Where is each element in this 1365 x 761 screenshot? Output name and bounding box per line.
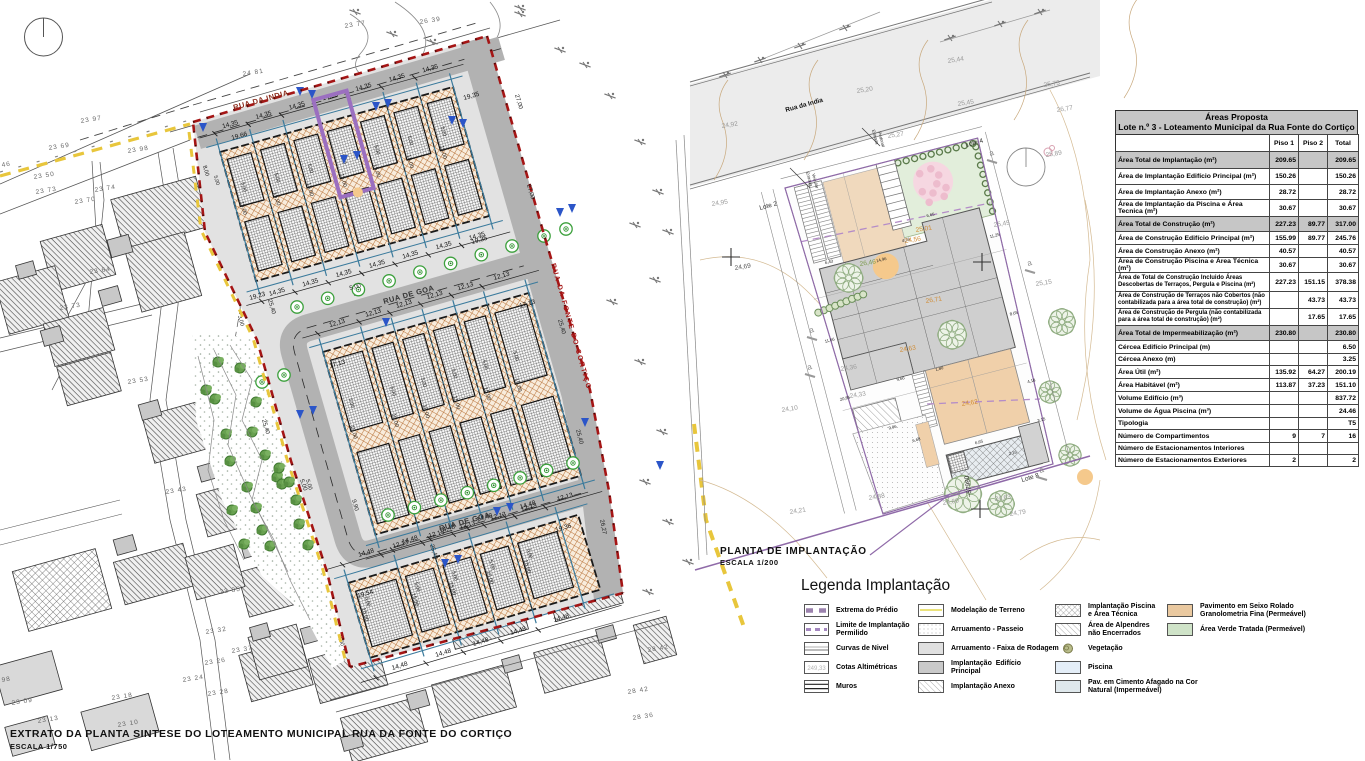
svg-text:14,48: 14,48 (391, 660, 409, 671)
svg-text:98: 98 (1, 676, 11, 684)
svg-text:25,45: 25,45 (993, 219, 1011, 229)
svg-text:46: 46 (1, 161, 11, 169)
svg-text:23 70: 23 70 (74, 196, 96, 206)
svg-text:Lote 2: Lote 2 (759, 200, 779, 212)
svg-text:PLANTA DE IMPLANTAÇÃO: PLANTA DE IMPLANTAÇÃO (720, 544, 867, 557)
svg-text:4,18: 4,18 (1027, 377, 1037, 384)
svg-text:24,10: 24,10 (781, 404, 799, 414)
svg-text:a: a (988, 148, 995, 158)
svg-text:23 97: 23 97 (80, 115, 102, 125)
svg-text:23 98: 23 98 (127, 145, 149, 155)
svg-text:23 77: 23 77 (344, 20, 366, 30)
svg-text:24,69: 24,69 (734, 262, 752, 272)
svg-text:25,73: 25,73 (1043, 79, 1061, 89)
svg-text:3,15: 3,15 (1037, 416, 1047, 423)
svg-text:25,15: 25,15 (1035, 278, 1053, 288)
svg-text:25,27: 25,27 (887, 130, 905, 140)
svg-text:23 69: 23 69 (48, 142, 70, 152)
svg-text:a: a (808, 325, 815, 335)
svg-text:26,77: 26,77 (1056, 104, 1074, 114)
svg-text:27,00: 27,00 (513, 94, 523, 111)
svg-text:249,33: 249,33 (807, 666, 826, 672)
svg-text:23 74: 23 74 (94, 184, 116, 194)
svg-text:EXTRATO DA PLANTA SINTESE DO L: EXTRATO DA PLANTA SINTESE DO LOTEAMENTO … (10, 728, 512, 740)
svg-text:a: a (1026, 258, 1033, 268)
svg-text:14,48: 14,48 (435, 647, 453, 658)
svg-text:24,79: 24,79 (1009, 508, 1027, 518)
svg-text:24,21: 24,21 (789, 506, 807, 516)
svg-text:23 50: 23 50 (33, 171, 55, 181)
svg-text:ESCALA 1/200: ESCALA 1/200 (720, 558, 779, 567)
svg-text:26 39: 26 39 (419, 16, 441, 26)
svg-text:24,95: 24,95 (711, 198, 729, 208)
svg-text:28 36: 28 36 (632, 712, 654, 722)
svg-text:23 32: 23 32 (205, 626, 227, 636)
svg-text:28 42: 28 42 (627, 686, 649, 696)
svg-text:ESCALA 1/750: ESCALA 1/750 (10, 742, 67, 751)
svg-text:23 26: 23 26 (204, 657, 226, 667)
svg-text:23 73: 23 73 (35, 186, 57, 196)
svg-text:24 81: 24 81 (242, 68, 264, 78)
svg-text:23 24: 23 24 (182, 674, 204, 684)
svg-text:23 28: 23 28 (207, 688, 229, 698)
svg-text:23 43: 23 43 (165, 486, 187, 496)
svg-text:a: a (806, 362, 813, 372)
svg-text:25,89: 25,89 (1045, 149, 1063, 159)
svg-text:23 53: 23 53 (127, 376, 149, 386)
